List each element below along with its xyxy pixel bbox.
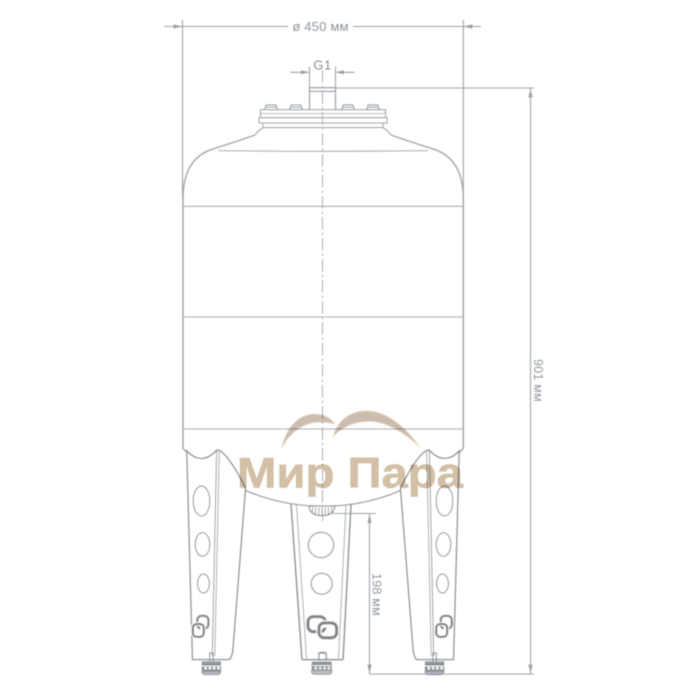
svg-text:198 мм: 198 мм: [370, 573, 384, 616]
svg-text:ø 450 мм: ø 450 мм: [292, 19, 348, 34]
svg-text:901 мм: 901 мм: [531, 359, 545, 402]
svg-text:Мир Пара: Мир Пара: [237, 450, 464, 498]
